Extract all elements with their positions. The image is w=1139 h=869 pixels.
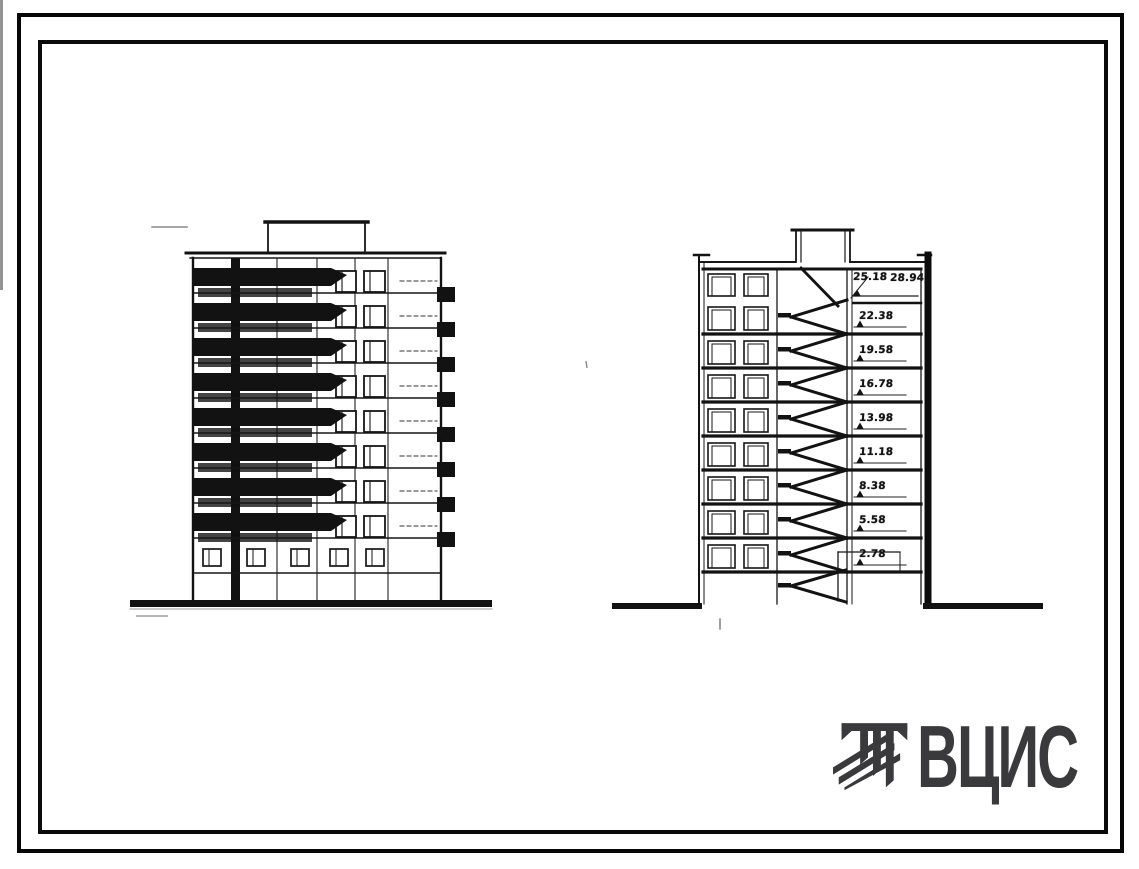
elevation-mark-floor-8: 19.58 <box>859 345 894 356</box>
vcis-logo: ВЦИС <box>833 721 1139 792</box>
vcis-logo-text: ВЦИС <box>917 723 1077 792</box>
facade-elevation-drawing <box>130 222 492 616</box>
elevation-mark-floor-4: 8.38 <box>859 481 886 492</box>
elevation-mark-machine-room: 28.94 <box>890 273 925 284</box>
ground-line-section-right <box>923 603 1043 609</box>
elevation-mark-floor-3: 5.58 <box>859 515 886 526</box>
elevation-mark-floor-6: 13.98 <box>859 413 894 424</box>
cross-section-drawing <box>612 230 1043 629</box>
elevation-mark-roof: 25.18 <box>853 272 888 283</box>
scan-edge-artifact <box>0 0 3 290</box>
ground-line-left <box>130 600 492 607</box>
elevation-mark-floor-2: 2.78 <box>859 549 886 560</box>
elevation-mark-floor-9: 22.38 <box>859 311 894 322</box>
vcis-logo-icon <box>833 721 913 791</box>
elevation-mark-floor-5: 11.18 <box>859 447 894 458</box>
elevation-mark-floor-7: 16.78 <box>859 379 894 390</box>
ground-line-section-left <box>612 603 702 609</box>
